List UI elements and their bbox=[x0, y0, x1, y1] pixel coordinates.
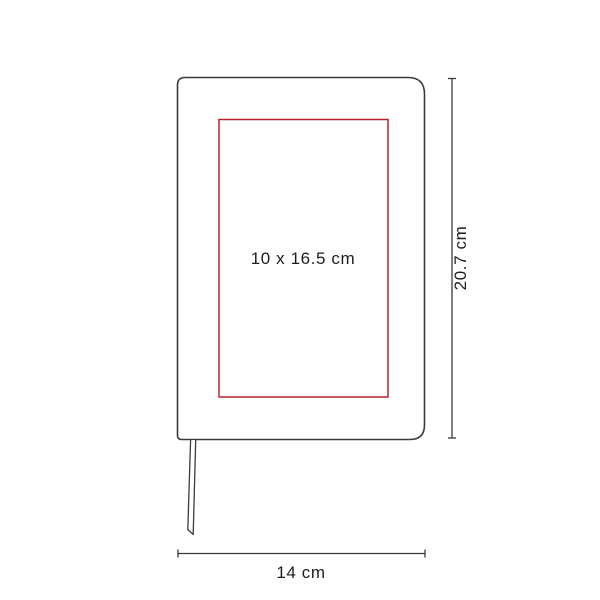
width-dimension-line bbox=[178, 550, 425, 558]
product-dimension-diagram: 10 x 16.5 cm 20.7 cm 14 cm bbox=[0, 0, 600, 600]
width-label: 14 cm bbox=[276, 563, 325, 582]
diagram-canvas: 10 x 16.5 cm 20.7 cm 14 cm bbox=[0, 0, 600, 600]
bookmark-ribbon-icon bbox=[188, 440, 196, 535]
height-label: 20.7 cm bbox=[451, 226, 470, 291]
print-area-label: 10 x 16.5 cm bbox=[251, 249, 356, 268]
